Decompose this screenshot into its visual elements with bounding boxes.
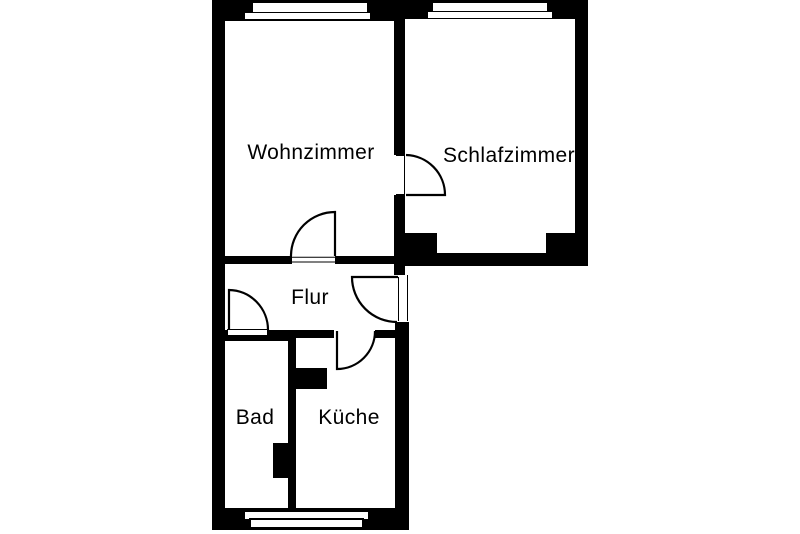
apartment-entrance-door [352,275,408,322]
bad-door [229,290,268,330]
floorplan-canvas: Wohnzimmer Schlafzimmer Flur Bad Küche [0,0,800,534]
kueche-label: Küche [318,406,380,430]
kueche-door [337,331,375,369]
flur-label: Flur [291,286,329,310]
schlafzimmer-label: Schlafzimmer [443,144,575,168]
door-symbols [0,0,800,534]
wohnzimmer-flur-door [291,212,335,262]
bad-label: Bad [236,406,275,430]
schlafzimmer-door [406,155,445,195]
wohnzimmer-label: Wohnzimmer [247,141,374,165]
